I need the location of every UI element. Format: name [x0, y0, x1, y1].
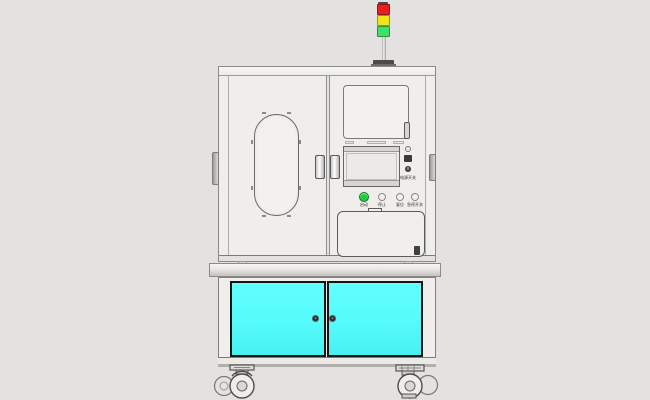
vent-slot — [345, 141, 354, 144]
estop-button-label: 急停开关 — [400, 202, 430, 207]
cabinet-knob-left — [312, 315, 319, 322]
key-switch — [405, 166, 411, 172]
machine-rendering: 电源开关 启动 停止 复位 急停开关 — [0, 0, 650, 400]
start-button — [359, 192, 369, 202]
window-clip — [287, 215, 291, 217]
window-clip — [251, 186, 253, 190]
stop-button — [378, 193, 386, 201]
window-clip — [262, 215, 266, 217]
enclosure-top-rail — [219, 67, 435, 76]
left-side-handle — [212, 152, 219, 185]
vent-slot — [393, 141, 404, 144]
cabinet-knob-right — [329, 315, 336, 322]
vent-slot — [367, 141, 386, 144]
left-door-handle — [315, 155, 325, 179]
window-clip — [299, 140, 301, 144]
window-clip — [299, 186, 301, 190]
reset-button — [396, 193, 404, 201]
monitor-top-bezel — [344, 147, 399, 152]
caster-left — [212, 363, 264, 400]
drawer-latch — [414, 246, 420, 255]
connector-port — [404, 155, 412, 162]
tower-light-pole — [382, 37, 386, 61]
enclosure-left-post-line — [228, 76, 229, 256]
right-door-handle — [330, 155, 340, 179]
right-side-handle — [429, 154, 436, 181]
monitor-bottom-bezel — [344, 180, 399, 186]
control-monitor — [343, 146, 400, 187]
window-clip — [251, 140, 253, 144]
window-clip — [287, 112, 291, 114]
window-pull-handle — [404, 122, 410, 139]
access-drawer — [337, 211, 425, 257]
oval-viewing-window — [254, 114, 299, 216]
tower-light-yellow-segment — [377, 15, 390, 26]
cabinet-door-right — [327, 281, 423, 357]
caster-right — [388, 363, 440, 400]
monitor-screen — [346, 153, 397, 180]
tower-light-red-segment — [377, 4, 390, 15]
tower-light-green-segment — [377, 26, 390, 37]
window-clip — [262, 112, 266, 114]
estop-button — [411, 193, 419, 201]
power-switch-label: 电源开关 — [396, 175, 420, 180]
right-panel-window — [343, 85, 409, 139]
indicator-lamp — [405, 146, 411, 152]
base-table-band — [209, 263, 441, 277]
enclosure-right-post-line — [425, 76, 426, 256]
